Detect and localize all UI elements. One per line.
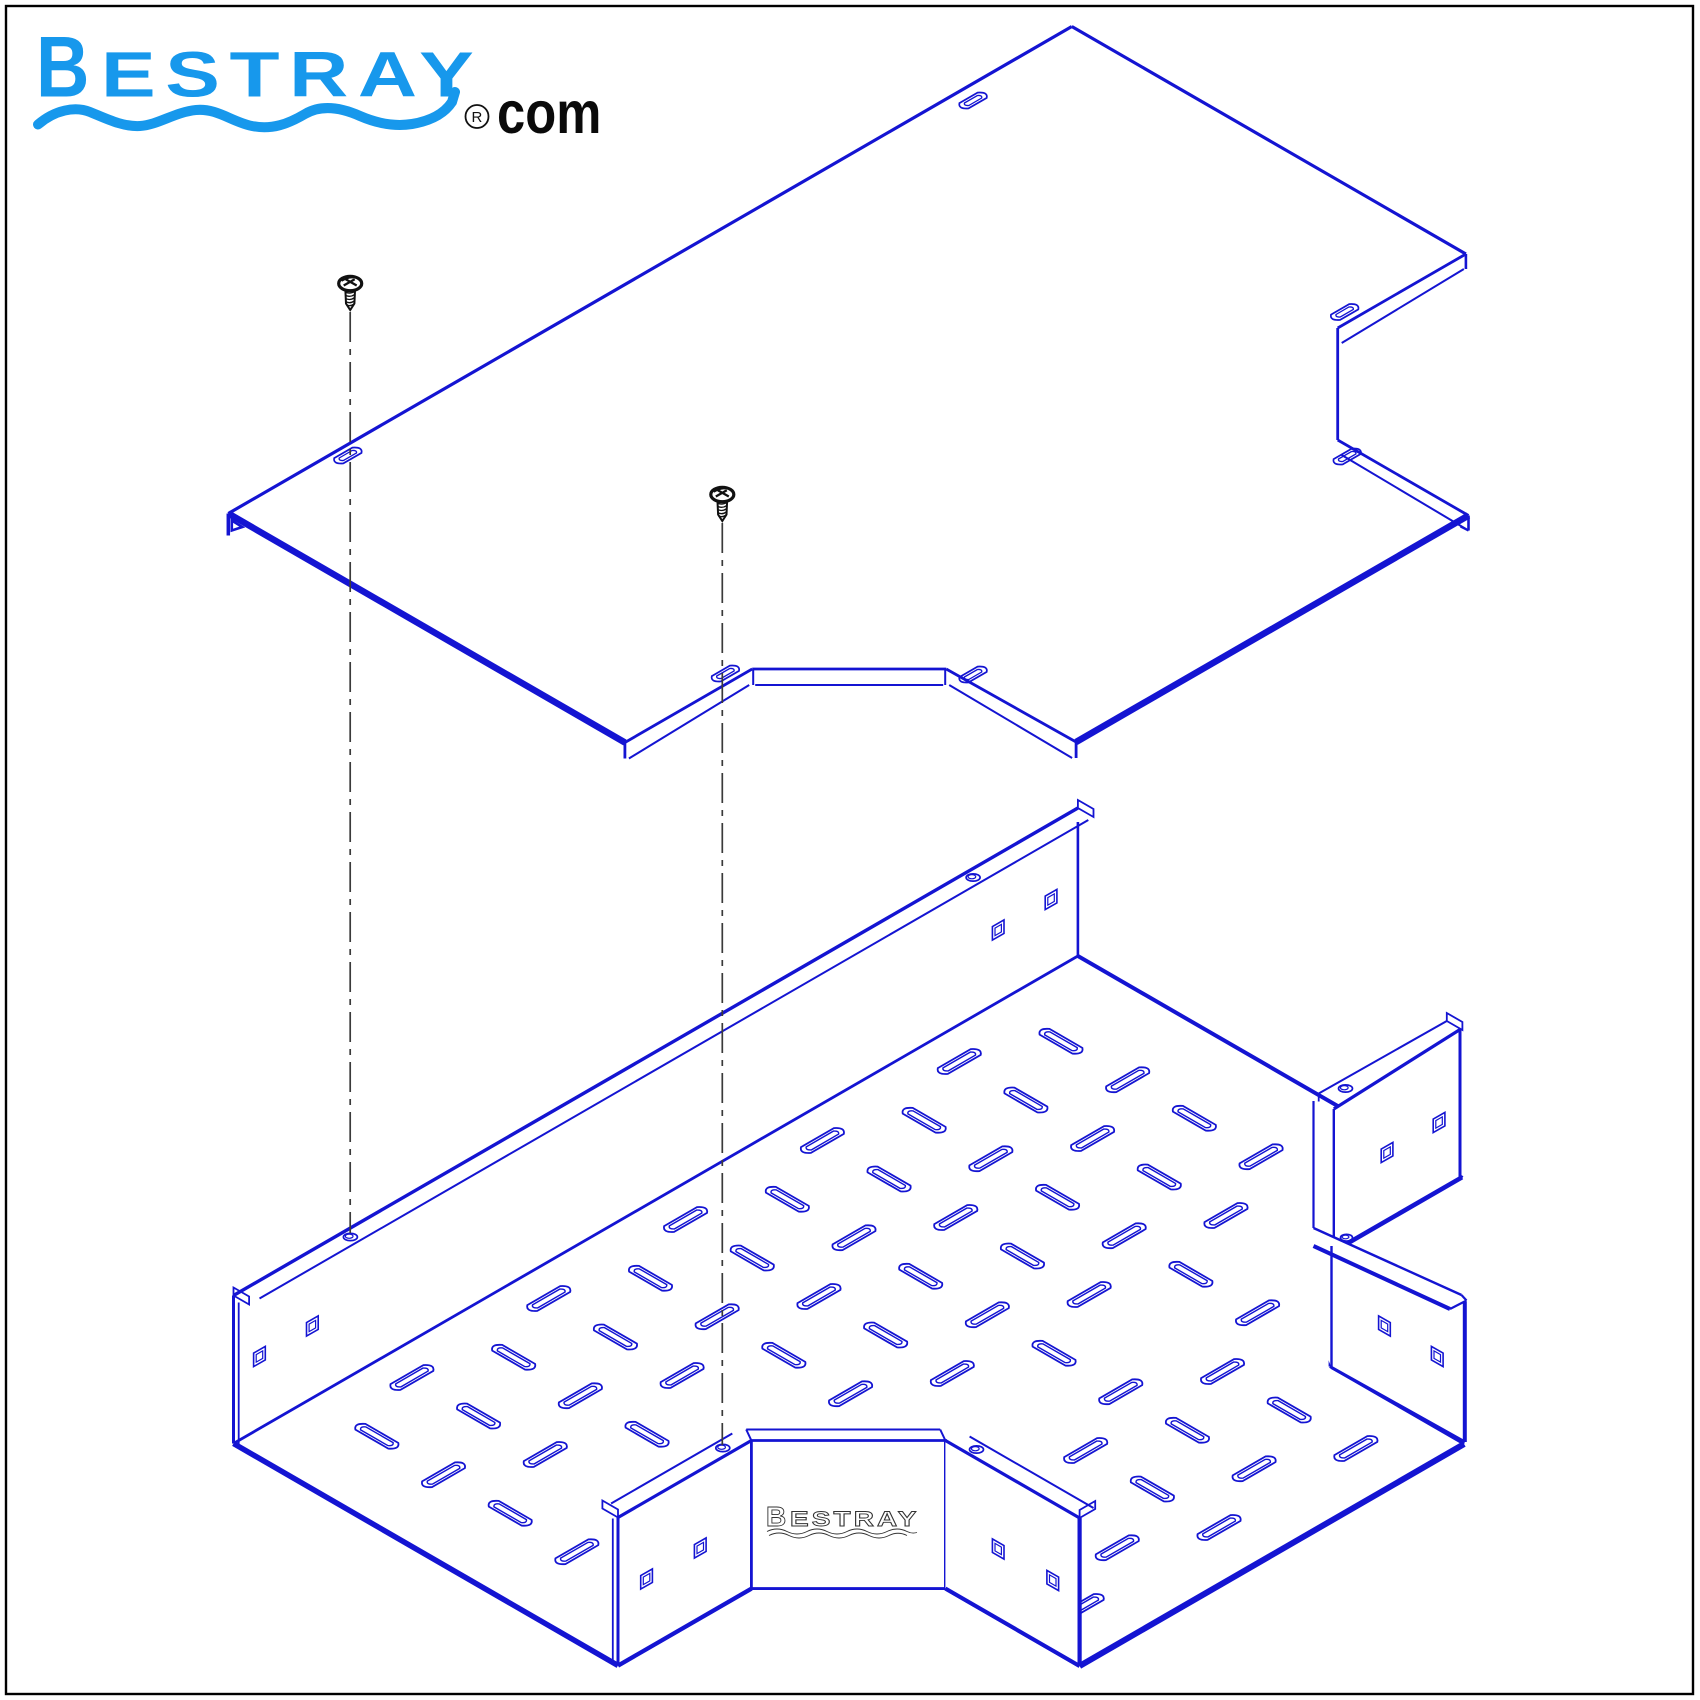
svg-text:ESTRAY: ESTRAY	[790, 1507, 919, 1531]
svg-text:B: B	[36, 18, 89, 115]
svg-text:B: B	[766, 1501, 786, 1532]
svg-text:ESTRAY: ESTRAY	[101, 38, 483, 110]
svg-text:R: R	[472, 109, 483, 126]
svg-text:com: com	[497, 79, 601, 145]
